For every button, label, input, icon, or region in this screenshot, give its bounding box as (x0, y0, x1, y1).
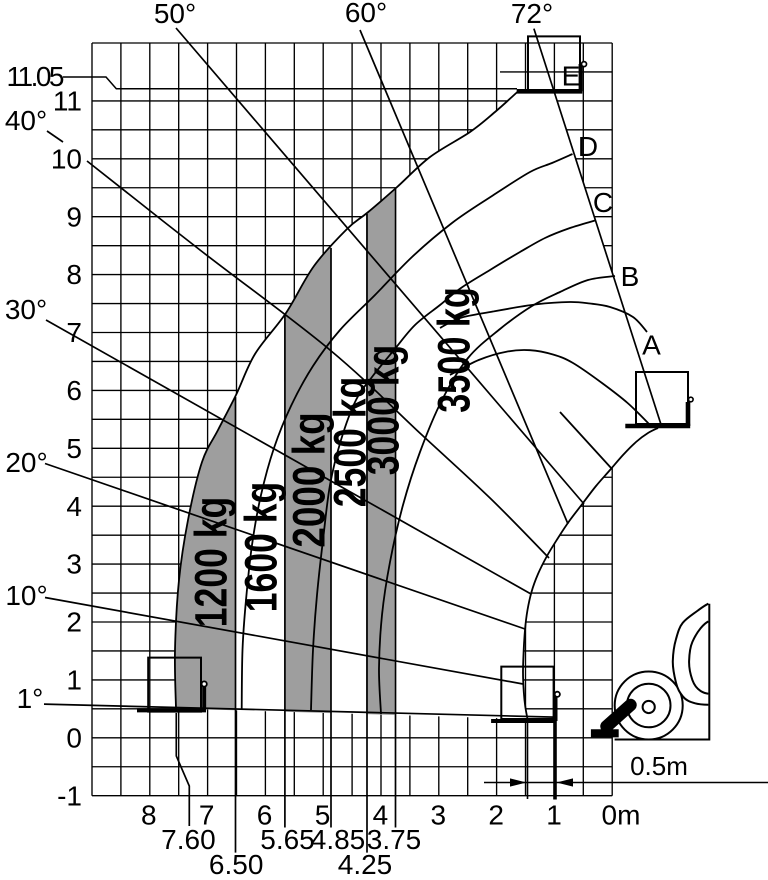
svg-text:1200 kg: 1200 kg (185, 497, 236, 627)
svg-text:3000 kg: 3000 kg (357, 345, 408, 475)
svg-text:5: 5 (66, 433, 82, 464)
svg-text:5.65: 5.65 (260, 824, 315, 855)
svg-text:11: 11 (53, 85, 82, 116)
svg-text:3: 3 (66, 549, 82, 580)
svg-text:3: 3 (431, 800, 447, 831)
svg-text:3.75: 3.75 (367, 824, 422, 855)
svg-text:20°: 20° (5, 447, 47, 478)
svg-text:50°: 50° (154, 0, 196, 29)
svg-text:3500 kg: 3500 kg (430, 287, 480, 412)
svg-text:-1: -1 (57, 780, 82, 811)
svg-text:10: 10 (51, 143, 82, 174)
svg-text:0: 0 (66, 722, 82, 753)
svg-text:C: C (593, 187, 613, 218)
svg-text:4: 4 (66, 491, 82, 522)
svg-text:D: D (578, 131, 598, 162)
svg-text:40°: 40° (5, 105, 47, 136)
svg-text:E: E (562, 61, 581, 92)
svg-text:10°: 10° (5, 580, 47, 611)
svg-text:0m: 0m (602, 800, 641, 831)
svg-text:1: 1 (546, 800, 562, 831)
svg-text:6.50: 6.50 (209, 849, 264, 880)
svg-text:7.60: 7.60 (161, 824, 216, 855)
svg-text:1°: 1° (17, 683, 44, 714)
svg-text:60°: 60° (345, 0, 387, 28)
svg-text:A: A (642, 330, 661, 361)
svg-text:7: 7 (66, 317, 82, 348)
svg-text:1: 1 (66, 664, 82, 695)
svg-text:30°: 30° (5, 294, 47, 325)
svg-text:2: 2 (488, 800, 504, 831)
svg-text:2: 2 (66, 607, 82, 638)
svg-text:1600 kg: 1600 kg (235, 482, 286, 612)
svg-text:0.5m: 0.5m (630, 751, 688, 781)
svg-text:8: 8 (66, 259, 82, 290)
svg-text:9: 9 (66, 201, 82, 232)
svg-text:72°: 72° (511, 0, 553, 29)
svg-text:8: 8 (141, 799, 157, 830)
svg-text:B: B (621, 261, 640, 292)
svg-text:6: 6 (66, 375, 82, 406)
